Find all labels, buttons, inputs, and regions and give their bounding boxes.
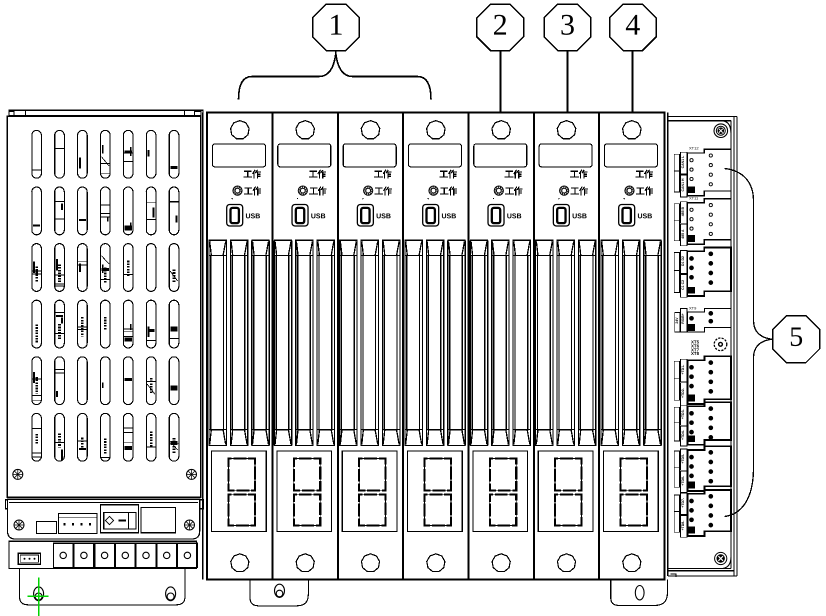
svg-text:RS/B+: RS/B+ [681, 313, 685, 323]
svg-text:485 A: 485 A [681, 229, 685, 239]
svg-text:XT12: XT12 [689, 146, 699, 151]
svg-text:+TD6-: +TD6- [681, 475, 685, 486]
svg-text:+TD1-: +TD1- [681, 364, 685, 375]
svg-text:485 B: 485 B [681, 206, 685, 216]
svg-text:+TD3-: +TD3- [681, 408, 685, 419]
svg-text:CAN1 L: CAN1 L [681, 155, 685, 169]
svg-text:+TD2-: +TD2- [681, 387, 685, 398]
svg-text:D1 D2: D1 D2 [681, 256, 685, 266]
svg-text:XT8: XT8 [691, 351, 700, 356]
svg-text:+TD7-: +TD7- [681, 497, 685, 508]
svg-text:24V: 24V [675, 317, 679, 324]
svg-text:+TD8-: +TD8- [681, 520, 685, 531]
svg-text:XT11: XT11 [689, 195, 699, 200]
svg-text:XT9: XT9 [689, 306, 697, 311]
svg-text:+TD4-: +TD4- [681, 429, 685, 440]
svg-text:+TD5-: +TD5- [681, 453, 685, 464]
svg-text:C1 C2: C1 C2 [681, 280, 685, 290]
svg-text:CAN1 H: CAN1 H [681, 178, 685, 192]
